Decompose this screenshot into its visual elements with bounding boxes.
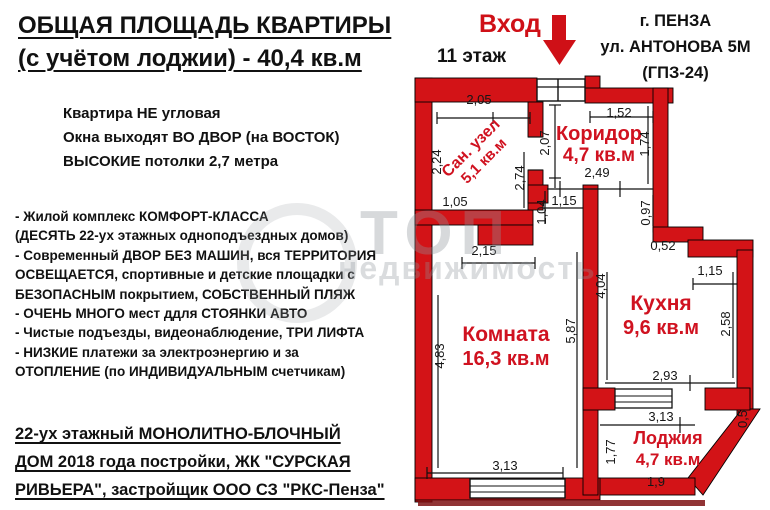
dim-lodzhiya-bottom: 1,9 [637,474,675,490]
dim-kuhnya-step: 0,52 [644,238,682,254]
wall-left [415,78,432,502]
entrance-door [537,79,585,101]
page-title-line1: ОБЩАЯ ПЛОЩАДЬ КВАРТИРЫ [18,12,391,40]
dim-komnata-right: 5,87 [563,312,579,350]
wall-sanuzel-step [478,225,533,245]
building-info-line: ДОМ 2018 года постройки, ЖК "СУРСКАЯ [15,448,385,476]
page-title-line2: (с учётом лоджии) - 40,4 кв.м [18,45,362,73]
dim-kuhnya-bottom: 2,93 [646,368,684,384]
room-label-kuhnya: Кухня 9,6 кв.м [591,291,731,341]
feature-line: - НИЗКИЕ платежи за электроэнергию и за [15,343,376,362]
dim-hall-right: 0,97 [638,194,654,232]
dim-koridor-bottom: 2,49 [578,165,616,181]
feature-line: ОСВЕЩАЕТСЯ, спортивные и детские площадк… [15,265,376,284]
entrance-arrow-icon [540,13,580,69]
wall-sanuzel-bottom [415,210,533,225]
dim-lodzhiya-top: 3,13 [642,409,680,425]
highlight-ceilings: ВЫСОКИЕ потолки 2,7 метра [63,153,278,170]
room-area: 16,3 кв.м [436,347,576,372]
dim-kuhnya-top: 1,15 [691,263,729,279]
room-area: 9,6 кв.м [591,316,731,341]
plan-shadow [418,500,705,506]
dim-koridor-right: 1,74 [637,125,653,163]
room-name: Лоджия [608,428,728,449]
highlight-corner: Квартира НЕ угловая [63,105,221,122]
building-info-line: РИВЬЕРА", застройщик ООО СЗ "РКС-Пенза" [15,476,385,504]
dim-komnata-bottom: 3,13 [486,458,524,474]
room-name: Комната [436,322,576,347]
room-area: 4,7 кв.м [608,449,728,470]
room-name: Кухня [591,291,731,316]
dim-sanuzel-left: 2,24 [429,143,445,181]
highlight-windows: Окна выходят ВО ДВОР (на ВОСТОК) [63,129,340,146]
dim-lodzhiya-right: 0,5 [735,400,751,438]
dim-sanuzel-right: 2,74 [512,159,528,197]
dim-koridor-top: 1,52 [600,105,638,121]
feature-line: БЕЗОПАСНЫМ покрытием, СОБСТВЕННЫЙ ПЛЯЖ [15,285,376,304]
feature-line: - Современный ДВОР БЕЗ МАШИН, вся ТЕРРИТ… [15,246,376,265]
komnata-window [470,479,565,498]
address-city: г. ПЕНЗА [583,8,768,34]
feature-line: - ОЧЕНЬ МНОГО мест ддля СТОЯНКИ АВТО [15,304,376,323]
dim-lodzhiya-left: 1,77 [603,433,619,471]
building-info: 22-ух этажный МОНОЛИТНО-БЛОЧНЫЙ ДОМ 2018… [15,420,385,504]
dim-koridor-left: 2,07 [537,124,553,162]
dim-sanuzel-bottom: 1,05 [436,194,474,210]
room-label-komnata: Комната 16,3 кв.м [436,322,576,372]
room-label-lodzhiya: Лоджия 4,7 кв.м [608,428,728,470]
features-list: - Жилой комплекс КОМФОРТ-КЛАССА (ДЕСЯТЬ … [15,207,376,382]
building-info-line: 22-ух этажный МОНОЛИТНО-БЛОЧНЫЙ [15,420,385,448]
address-street: ул. АНТОНОВА 5М [583,34,768,60]
dim-sanuzel-top: 2,05 [460,92,498,108]
dim-kuhnya-left: 4,04 [593,267,609,305]
entrance-label: Вход [479,10,541,39]
kuhnya-lodzhiya-window [615,389,672,408]
dim-hall-left: 1,04 [534,193,550,231]
feature-line: - Жилой комплекс КОМФОРТ-КЛАССА [15,207,376,226]
feature-line: ОТОПЛЕНИЕ (по ИНДИВИДУАЛЬНЫМ счетчикам) [15,362,376,381]
dim-kuhnya-right: 2,58 [718,305,734,343]
wall-kuhnya-lodzhiya-left [583,388,615,410]
dim-komnata-left: 4,83 [432,337,448,375]
feature-line: (ДЕСЯТЬ 22-ух этажных одноподъездных дом… [15,226,376,245]
feature-line: - Чистые подъезды, видеонаблюдение, ТРИ … [15,323,376,342]
dim-hall-width: 1,15 [545,193,583,209]
dim-komnata-top: 2,15 [465,243,503,259]
